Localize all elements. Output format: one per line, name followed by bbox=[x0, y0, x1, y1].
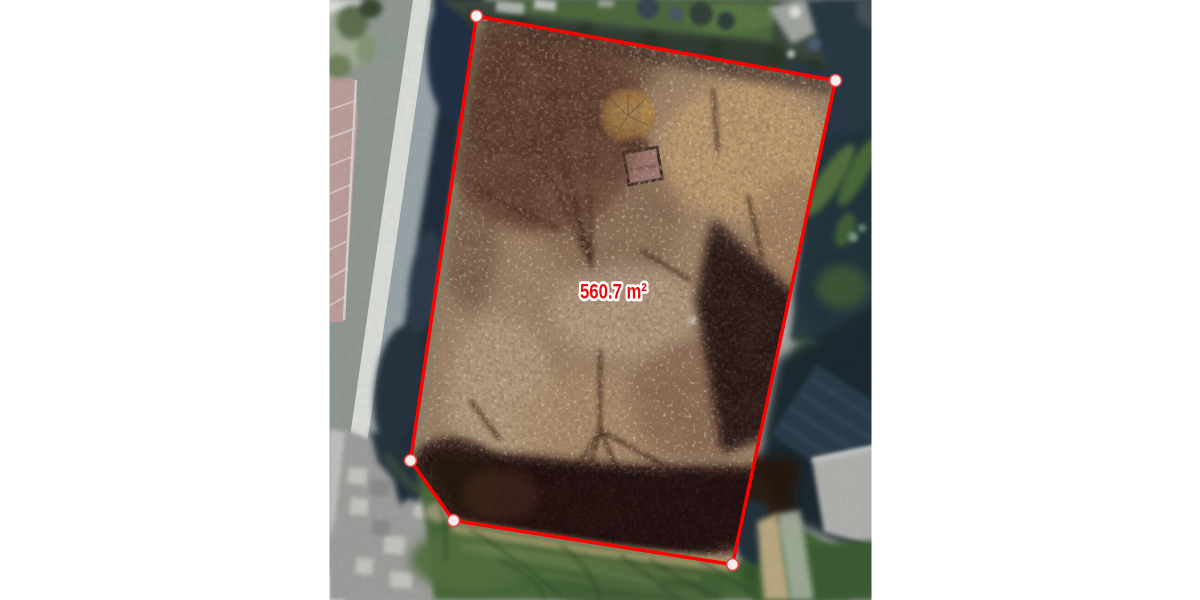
svg-text:560.7 m²: 560.7 m² bbox=[580, 280, 647, 304]
